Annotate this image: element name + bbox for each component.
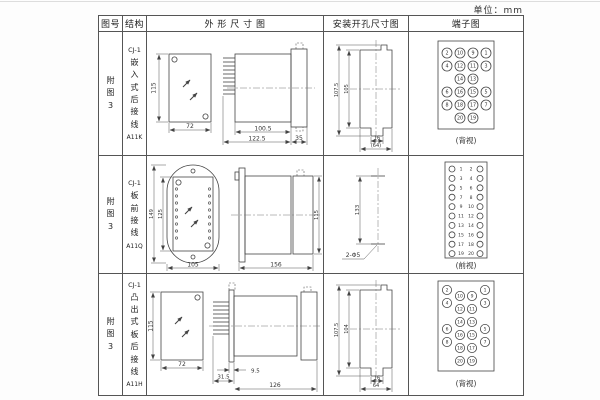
svg-text:19: 19	[458, 251, 464, 257]
svg-text:2: 2	[446, 288, 449, 294]
view-label: (背视)	[456, 135, 477, 145]
svg-text:6: 6	[445, 90, 448, 96]
svg-text:17: 17	[470, 103, 476, 109]
svg-text:16: 16	[457, 90, 463, 96]
svg-text:15: 15	[458, 232, 464, 238]
outline-drawing-a11h: 115 72 9.5 31.5 126	[147, 274, 323, 395]
row1-terminal-cell: 21091 412113 1413 616155 818177 2019 (背视…	[409, 32, 524, 156]
view-label: (前视)	[456, 260, 477, 270]
fig-no: 附图3	[106, 75, 116, 112]
type-code: A11Q	[126, 243, 142, 250]
outline-drawing-a11k: 115 72 100.5 122.5 35	[147, 32, 323, 155]
svg-text:18: 18	[468, 242, 474, 248]
svg-text:7: 7	[460, 195, 463, 201]
svg-text:2: 2	[470, 167, 473, 173]
dim-flange-height: 149	[149, 209, 155, 219]
dim-flange-thickness: 9.5	[251, 369, 260, 375]
svg-text:10: 10	[457, 51, 463, 57]
page-top-rule	[0, 1, 600, 2]
svg-text:13: 13	[458, 223, 464, 229]
dim-hole-spacing: 133	[355, 204, 361, 215]
hole-spec-label: 2-Φ5	[346, 252, 361, 259]
svg-text:3: 3	[460, 176, 463, 182]
svg-text:20: 20	[468, 251, 474, 257]
dimension-lines	[156, 54, 307, 145]
svg-text:18: 18	[457, 103, 463, 109]
svg-text:16: 16	[457, 333, 463, 339]
header-terminal: 端子图	[409, 16, 524, 32]
svg-text:18: 18	[457, 346, 463, 352]
svg-text:11: 11	[470, 64, 476, 70]
svg-text:19: 19	[470, 116, 476, 122]
svg-text:8: 8	[446, 340, 449, 346]
dim-outer-height: 107.5	[334, 323, 340, 337]
dim-inner-height: 104	[344, 324, 350, 334]
row2-fig-no-cell: 附图3	[99, 156, 123, 274]
svg-text:19: 19	[469, 359, 475, 365]
row3-structure-cell: CJ-1 凸出式板后接线 A11H	[123, 274, 147, 396]
svg-text:13: 13	[470, 77, 476, 83]
svg-text:5: 5	[460, 185, 463, 191]
row3-terminal-cell: 21 109 43 1211 1413 65 1615 87 1817 2019…	[409, 274, 524, 396]
terminal-drawing-a11q: 12 34 56 78 910 1112 1314 1516 1718 1920…	[409, 156, 523, 273]
dim-body-length: 156	[270, 262, 282, 269]
terminal-numbers: 12 34 56 78 910 1112 1314 1516 1718 1920	[458, 167, 474, 258]
install-drawing-a11h: 107.5 104 16 64	[324, 274, 408, 395]
terminal-circles	[442, 285, 489, 365]
svg-text:17: 17	[458, 242, 464, 248]
dimension-lines	[342, 176, 377, 259]
side-view	[213, 283, 317, 362]
install-drawing-a11k: 107.5 105 16 (64)	[324, 32, 408, 155]
svg-text:9: 9	[471, 294, 474, 300]
dim-pin-length: 31.5	[217, 375, 230, 381]
svg-text:9: 9	[460, 204, 463, 210]
row3-fig-no-cell: 附图3	[99, 274, 123, 396]
dim-overall-width: 64	[373, 383, 379, 389]
svg-text:7: 7	[484, 340, 487, 346]
svg-text:14: 14	[468, 223, 474, 229]
fig-no: 附图3	[106, 316, 116, 353]
svg-text:12: 12	[468, 214, 474, 220]
install-drawing-a11q: 133 2-Φ5	[324, 156, 408, 273]
row1-install-cell: 107.5 105 16 (64)	[324, 32, 409, 156]
terminal-numbers: 21091 412113 1413 616155 818177 2019	[445, 51, 487, 122]
header-fig-no: 图号	[99, 16, 123, 32]
structure-desc: 凸出式板后接线	[129, 292, 139, 379]
dim-overall-width: (64)	[371, 143, 381, 149]
svg-text:7: 7	[484, 103, 487, 109]
dim-front-height: 115	[148, 320, 155, 332]
front-view	[161, 292, 203, 360]
terminal-circles	[442, 48, 491, 123]
dim-body-length: 126	[269, 382, 281, 389]
svg-text:3: 3	[484, 64, 487, 70]
svg-text:4: 4	[470, 176, 473, 182]
dim-body-height: 115	[314, 210, 320, 220]
dimension-lines	[150, 292, 317, 392]
svg-text:5: 5	[484, 327, 487, 333]
dimension-lines	[336, 45, 392, 152]
svg-text:11: 11	[458, 214, 464, 220]
dim-inner-height: 105	[344, 84, 350, 94]
header-outline: 外 形 尺 寸 图	[147, 16, 324, 32]
svg-text:15: 15	[469, 333, 475, 339]
dim-rear-length: 35	[295, 135, 303, 142]
svg-text:8: 8	[470, 195, 473, 201]
outline-drawing-a11q: 149 125 105 156 115	[147, 156, 323, 273]
row2-outline-cell: 149 125 105 156 115	[147, 156, 324, 274]
svg-text:6: 6	[470, 185, 473, 191]
row2-terminal-cell: 12 34 56 78 910 1112 1314 1516 1718 1920…	[409, 156, 524, 274]
row3-install-cell: 107.5 104 16 64	[324, 274, 409, 396]
dim-slot-width: 16	[374, 376, 380, 382]
svg-text:12: 12	[457, 307, 463, 313]
svg-text:17: 17	[469, 346, 475, 352]
dim-front-height: 115	[151, 82, 158, 94]
terminal-drawing-a11k: 21091 412113 1413 616155 818177 2019 (背视…	[409, 32, 523, 155]
structure-desc: 嵌入式后接线	[130, 57, 140, 131]
dim-slot-width: 16	[374, 136, 380, 142]
row2-structure-cell: CJ-1 板前接线 A11Q	[123, 156, 147, 274]
svg-text:1: 1	[460, 167, 463, 173]
dim-outer-height: 107.5	[334, 83, 340, 97]
svg-text:16: 16	[468, 232, 474, 238]
svg-text:20: 20	[457, 116, 463, 122]
svg-text:12: 12	[457, 64, 463, 70]
svg-text:10: 10	[457, 294, 463, 300]
terminal-block-outline	[445, 162, 487, 258]
dim-body-length: 100.5	[254, 126, 271, 133]
svg-text:20: 20	[457, 359, 463, 365]
model-label: CJ-1	[128, 46, 141, 54]
svg-text:4: 4	[445, 64, 448, 70]
dim-front-width: 72	[186, 123, 194, 130]
dim-inner-height: 125	[158, 209, 164, 219]
row3-outline-cell: 115 72 9.5 31.5 126	[147, 274, 324, 396]
model-label: CJ-1	[128, 179, 141, 187]
front-view	[169, 54, 211, 122]
svg-text:4: 4	[446, 301, 449, 307]
row1-structure-cell: CJ-1 嵌入式后接线 A11K	[123, 32, 147, 156]
terminal-numbers: 21 109 43 1211 1413 65 1615 87 1817 2019	[446, 288, 487, 365]
fig-no: 附图3	[106, 196, 116, 233]
type-code: A11K	[127, 134, 143, 141]
dim-total-length: 122.5	[248, 136, 265, 143]
svg-text:10: 10	[468, 204, 474, 210]
svg-text:1: 1	[484, 51, 487, 57]
svg-text:14: 14	[457, 320, 463, 326]
svg-text:13: 13	[469, 320, 475, 326]
dim-front-width: 105	[187, 262, 199, 269]
side-view	[223, 43, 307, 131]
row1-fig-no-cell: 附图3	[99, 32, 123, 156]
svg-text:9: 9	[471, 51, 474, 57]
model-label: CJ-1	[128, 281, 141, 289]
svg-text:15: 15	[470, 90, 476, 96]
type-code: A11H	[126, 381, 142, 388]
spec-table: 图号 结构 外 形 尺 寸 图 安装开孔尺寸图 端子图 附图3 CJ-1 嵌入式…	[98, 15, 524, 396]
row2-install-cell: 133 2-Φ5	[324, 156, 409, 274]
svg-text:3: 3	[484, 301, 487, 307]
header-structure: 结构	[123, 16, 147, 32]
svg-text:1: 1	[484, 288, 487, 294]
front-view	[167, 165, 219, 263]
svg-text:5: 5	[484, 90, 487, 96]
svg-text:14: 14	[457, 77, 463, 83]
dimension-lines	[336, 285, 392, 392]
svg-text:11: 11	[469, 307, 475, 313]
terminal-drawing-a11h: 21 109 43 1211 1413 65 1615 87 1817 2019…	[409, 274, 523, 395]
svg-text:6: 6	[446, 327, 449, 333]
svg-text:8: 8	[445, 103, 448, 109]
view-label: (背视)	[456, 378, 477, 388]
dim-front-width: 72	[178, 361, 186, 368]
row1-outline-cell: 115 72 100.5 122.5 35	[147, 32, 324, 156]
structure-desc: 板前接线	[130, 190, 140, 240]
terminal-circles	[449, 166, 483, 257]
svg-text:2: 2	[445, 51, 448, 57]
header-install: 安装开孔尺寸图	[324, 16, 409, 32]
